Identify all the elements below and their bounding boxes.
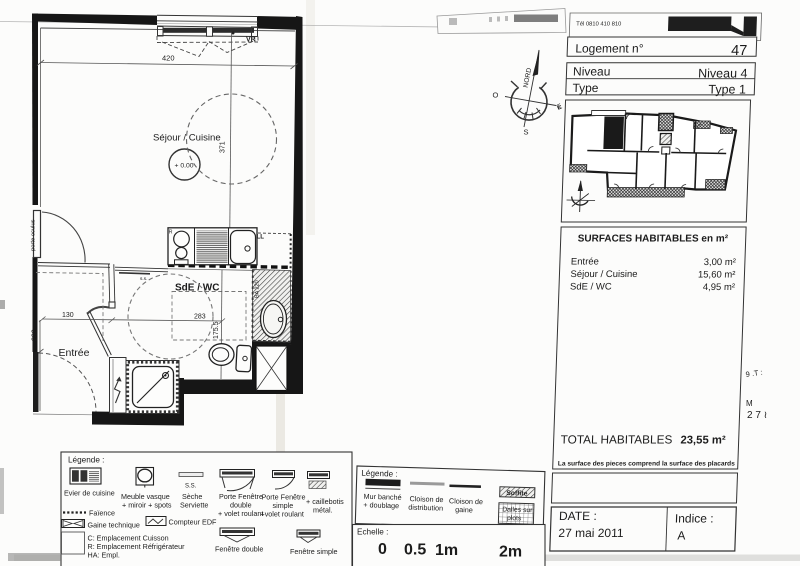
svg-text:Légende :: Légende : — [361, 469, 398, 479]
svg-text:Type: Type — [572, 81, 599, 95]
svg-text:S: S — [524, 128, 529, 137]
svg-text:Compteur EDF: Compteur EDF — [169, 518, 218, 527]
svg-text:Evier de cuisine: Evier de cuisine — [64, 489, 115, 498]
svg-text:gaine: gaine — [455, 505, 473, 515]
svg-text:15,60 m²: 15,60 m² — [698, 270, 736, 281]
svg-text:+volet roulant: +volet roulant — [261, 510, 304, 519]
svg-text:Echelle :: Echelle : — [357, 528, 388, 537]
svg-text:27 mai 2011: 27 mai 2011 — [558, 526, 624, 540]
svg-text:plots: plots — [507, 515, 522, 522]
svg-text:Faïence: Faïence — [89, 509, 115, 518]
svg-text:Niveau 4: Niveau 4 — [698, 67, 748, 81]
svg-text:+ 0.00: + 0.00 — [175, 163, 194, 170]
svg-text:LL: LL — [257, 234, 265, 241]
svg-text:S.S.: S.S. — [185, 484, 197, 490]
svg-text:Serviette: Serviette — [180, 501, 208, 510]
svg-text:SURFACES HABITABLES en m²: SURFACES HABITABLES en m² — [578, 234, 729, 245]
svg-text:Séjour / Cuisine: Séjour / Cuisine — [570, 269, 637, 280]
svg-text:Fenêtre double: Fenêtre double — [215, 545, 263, 554]
svg-text:distribution: distribution — [408, 503, 443, 513]
svg-text:Soffite: Soffite — [506, 490, 528, 498]
svg-text:Entrée: Entrée — [571, 257, 599, 268]
svg-text:47: 47 — [731, 43, 748, 59]
svg-text:283: 283 — [194, 314, 206, 321]
svg-text:O: O — [493, 91, 499, 100]
svg-text:métal.: métal. — [313, 506, 333, 515]
svg-text:+ miroir + spots: + miroir + spots — [122, 501, 172, 510]
svg-text:2 7 ≀: 2 7 ≀ — [747, 410, 767, 421]
svg-text:Gaine technique: Gaine technique — [88, 521, 140, 530]
svg-text:SdE / WC: SdE / WC — [570, 282, 612, 293]
svg-text:Logement n°: Logement n° — [575, 42, 644, 56]
svg-text:porte oculus: porte oculus — [31, 219, 37, 251]
svg-text:TOTAL HABITABLES: TOTAL HABITABLES — [560, 433, 672, 447]
svg-text:+ doublage: + doublage — [363, 500, 399, 510]
svg-text:R: R — [169, 230, 173, 236]
svg-text:Niveau: Niveau — [573, 65, 611, 79]
svg-text:Légende :: Légende : — [68, 456, 104, 465]
svg-text:+ volet roulant: + volet roulant — [218, 509, 263, 518]
svg-text:130: 130 — [62, 312, 74, 319]
svg-text:1m: 1m — [435, 542, 458, 559]
svg-text:175.5: 175.5 — [213, 321, 220, 339]
svg-text:Type 1: Type 1 — [708, 83, 746, 97]
svg-text:2m: 2m — [499, 544, 522, 561]
svg-text:Dalles sur: Dalles sur — [502, 506, 533, 514]
svg-text:232: 232 — [32, 329, 39, 341]
svg-text:0.5: 0.5 — [404, 542, 426, 559]
svg-text:HA: Empl.: HA: Empl. — [88, 551, 120, 560]
svg-text:Tél 0810 410 810: Tél 0810 410 810 — [576, 22, 621, 28]
svg-text:A: A — [677, 529, 686, 543]
svg-text:s.s.: s.s. — [140, 277, 147, 282]
svg-text:Fenêtre simple: Fenêtre simple — [290, 547, 338, 556]
svg-text:VR: VR — [246, 37, 256, 44]
svg-text:BA 220: BA 220 — [255, 280, 261, 298]
svg-text:0: 0 — [378, 541, 387, 558]
svg-text:Indice :: Indice : — [675, 512, 714, 526]
svg-text:3,00 m²: 3,00 m² — [703, 257, 736, 268]
svg-text:DATE :: DATE : — [559, 509, 597, 523]
svg-text:4,95 m²: 4,95 m² — [703, 282, 736, 293]
svg-text:Entrée: Entrée — [59, 347, 90, 359]
svg-text:M: M — [746, 399, 753, 408]
svg-text:La surface des pieces comprend: La surface des pieces comprend la surfac… — [558, 461, 736, 468]
svg-text:420: 420 — [162, 54, 175, 63]
svg-text:23,55 m²: 23,55 m² — [680, 435, 726, 447]
